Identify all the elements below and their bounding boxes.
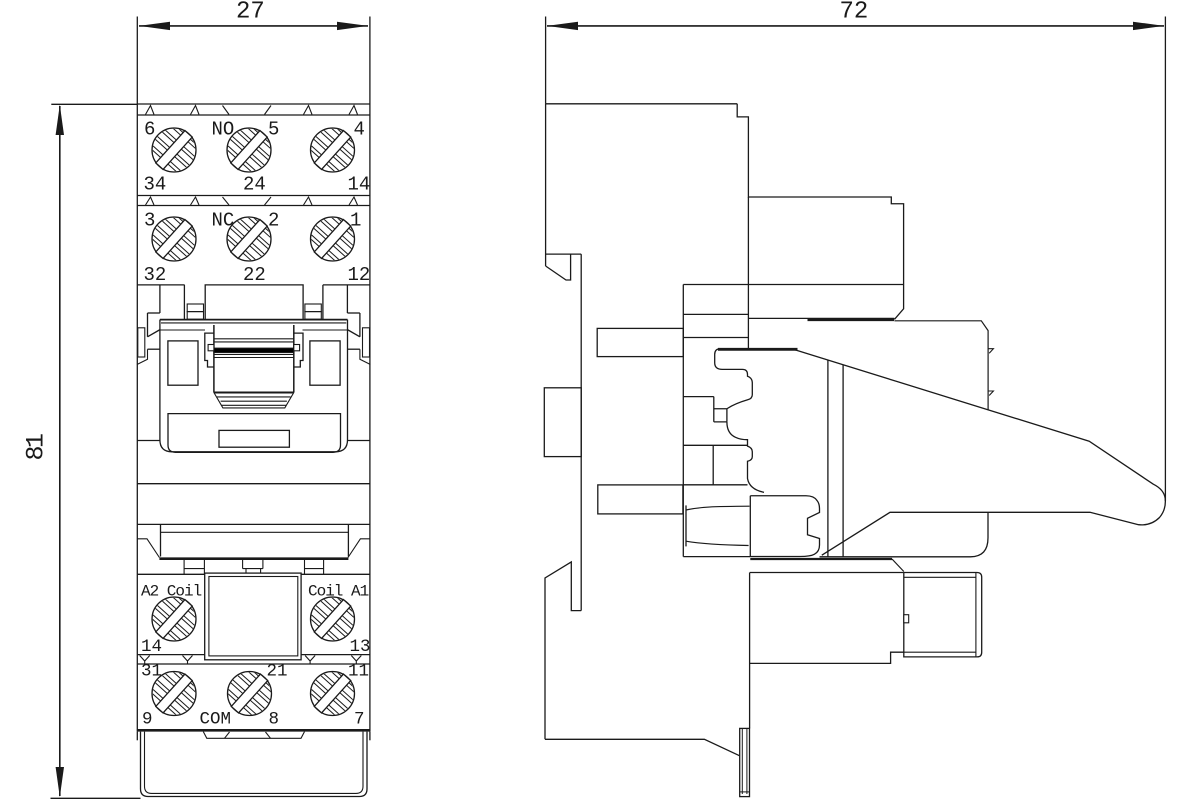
svg-text:27: 27 [236, 0, 265, 26]
svg-text:22: 22 [243, 264, 266, 286]
svg-text:5: 5 [268, 119, 279, 141]
svg-text:12: 12 [348, 264, 371, 286]
svg-text:COM: COM [200, 710, 232, 730]
svg-text:81: 81 [22, 434, 51, 461]
svg-text:31: 31 [141, 662, 162, 682]
svg-text:2: 2 [268, 210, 279, 232]
svg-text:3: 3 [144, 210, 155, 232]
svg-text:7: 7 [354, 710, 365, 730]
svg-text:24: 24 [243, 174, 266, 196]
svg-text:9: 9 [142, 710, 153, 730]
svg-text:8: 8 [269, 710, 280, 730]
svg-text:4: 4 [354, 119, 365, 141]
svg-text:32: 32 [144, 264, 167, 286]
svg-text:6: 6 [144, 119, 155, 141]
svg-text:14: 14 [348, 174, 371, 196]
svg-text:72: 72 [840, 0, 869, 26]
svg-text:11: 11 [348, 662, 369, 682]
svg-text:34: 34 [144, 174, 167, 196]
svg-text:21: 21 [267, 662, 288, 682]
